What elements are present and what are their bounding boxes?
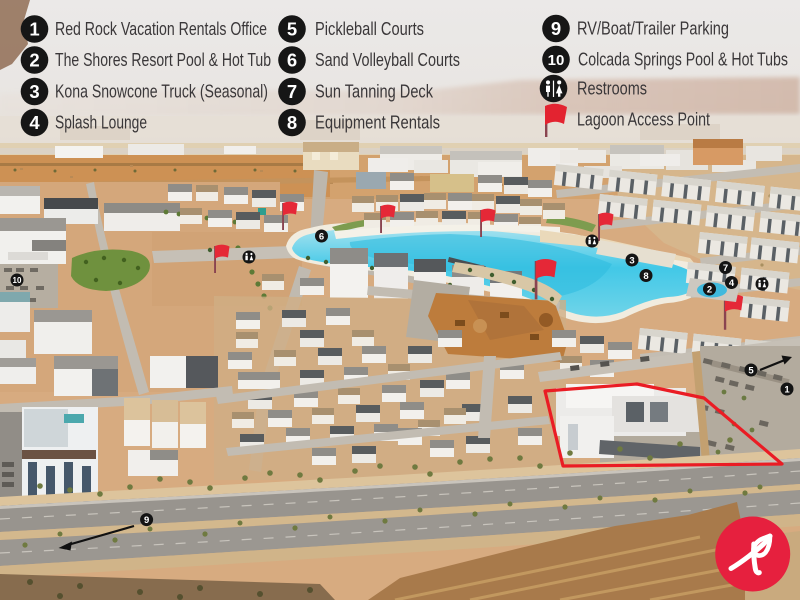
svg-text:7: 7 (287, 81, 297, 102)
svg-text:8: 8 (287, 112, 297, 133)
svg-text:The Shores Resort Pool & Hot T: The Shores Resort Pool & Hot Tub (55, 49, 271, 70)
svg-text:9: 9 (551, 18, 561, 39)
svg-text:10: 10 (548, 52, 565, 69)
svg-text:3: 3 (29, 81, 39, 102)
svg-text:Sand Volleyball Courts: Sand Volleyball Courts (315, 49, 460, 70)
svg-text:Kona Snowcone Truck (Seasonal): Kona Snowcone Truck (Seasonal) (55, 81, 268, 102)
svg-text:Sun Tanning Deck: Sun Tanning Deck (315, 81, 434, 102)
svg-text:9: 9 (144, 515, 149, 526)
svg-text:Equipment Rentals: Equipment Rentals (315, 112, 440, 133)
svg-text:RV/Boat/Trailer Parking: RV/Boat/Trailer Parking (577, 18, 729, 39)
svg-text:10: 10 (13, 276, 22, 285)
svg-text:6: 6 (319, 231, 324, 242)
svg-text:Colcada Springs Pool & Hot Tub: Colcada Springs Pool & Hot Tubs (578, 49, 788, 70)
svg-text:5: 5 (287, 19, 297, 40)
svg-text:4: 4 (29, 112, 40, 133)
svg-text:4: 4 (729, 278, 735, 289)
svg-text:2: 2 (707, 284, 712, 295)
svg-text:Pickleball Courts: Pickleball Courts (315, 18, 424, 39)
svg-text:6: 6 (287, 50, 297, 71)
svg-text:Splash Lounge: Splash Lounge (55, 112, 147, 133)
svg-text:Lagoon Access Point: Lagoon Access Point (577, 109, 710, 130)
svg-text:Restrooms: Restrooms (577, 78, 647, 99)
svg-text:7: 7 (723, 263, 728, 274)
svg-text:Red Rock Vacation Rentals Offi: Red Rock Vacation Rentals Office (55, 18, 267, 39)
svg-text:2: 2 (29, 50, 39, 71)
svg-text:3: 3 (629, 255, 634, 266)
svg-text:5: 5 (748, 365, 754, 376)
svg-text:1: 1 (29, 19, 39, 40)
svg-text:8: 8 (643, 271, 648, 282)
svg-text:1: 1 (784, 384, 790, 395)
